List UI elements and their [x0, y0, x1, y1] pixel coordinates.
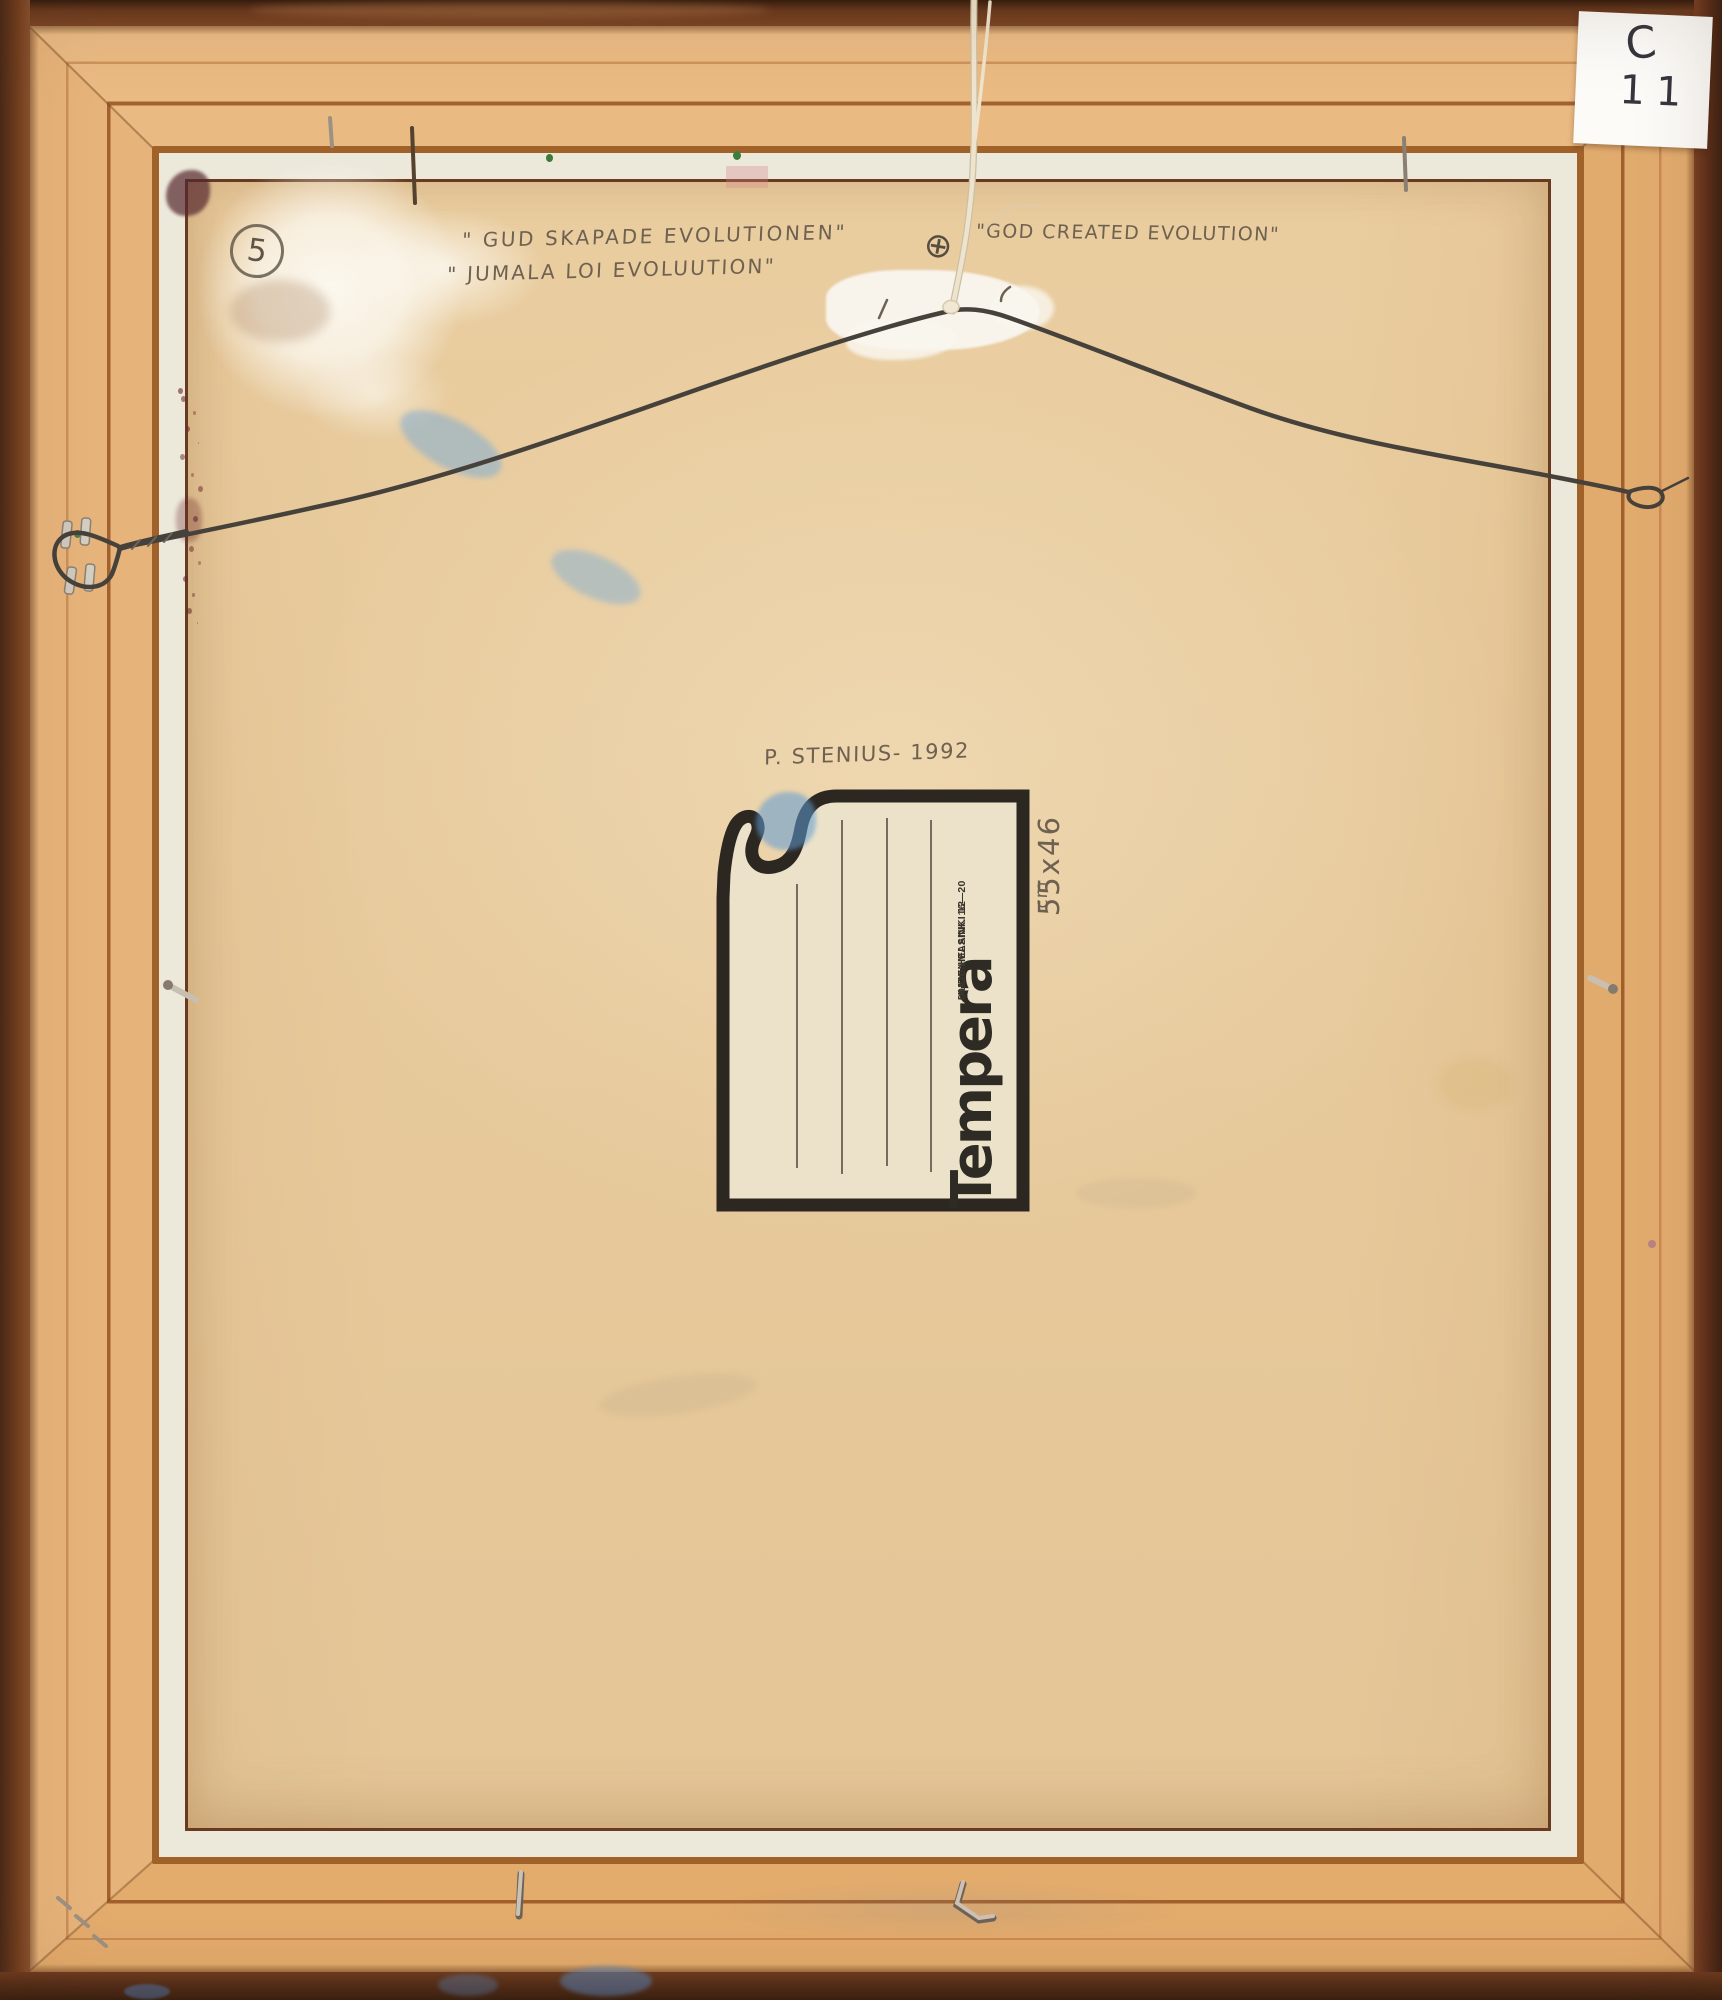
frame-wood-left [30, 26, 158, 1972]
frame-wood-top [30, 26, 1694, 152]
photo-back-of-framed-painting: " GUD SKAPADE EVOLUTIONEN" " JUMALA LOI … [0, 0, 1722, 2000]
label-address: UUDENMAANK. 16—20 00120 HELSINKI 12 [956, 894, 986, 1000]
frame-outer-edge-right [1694, 0, 1722, 2000]
label-brand-logo: Tempera [935, 998, 1011, 1208]
frame-outer-edge-bottom [0, 1972, 1722, 2000]
inscription-dimensions: 55x46cm [1032, 790, 1082, 918]
circled-number-value: 5 [245, 232, 270, 270]
inscription-english-title: "GOD CREATED EVOLUTION" [975, 220, 1280, 245]
frame-wood-bottom [30, 1858, 1694, 1972]
frame-wood-right [1578, 26, 1694, 1972]
frame-outer-edge-top [0, 0, 1722, 26]
inventory-tag-number: 11 [1619, 67, 1694, 116]
inventory-tag-letter: C [1623, 17, 1658, 71]
dimensions-unit: cm [1032, 880, 1052, 909]
frame-outer-edge-left [0, 0, 30, 2000]
label-address-line2: 00120 HELSINKI 12 [956, 901, 970, 1000]
inventory-tag: C 11 [1573, 11, 1713, 149]
frame-edge-scuff [250, 2, 770, 18]
